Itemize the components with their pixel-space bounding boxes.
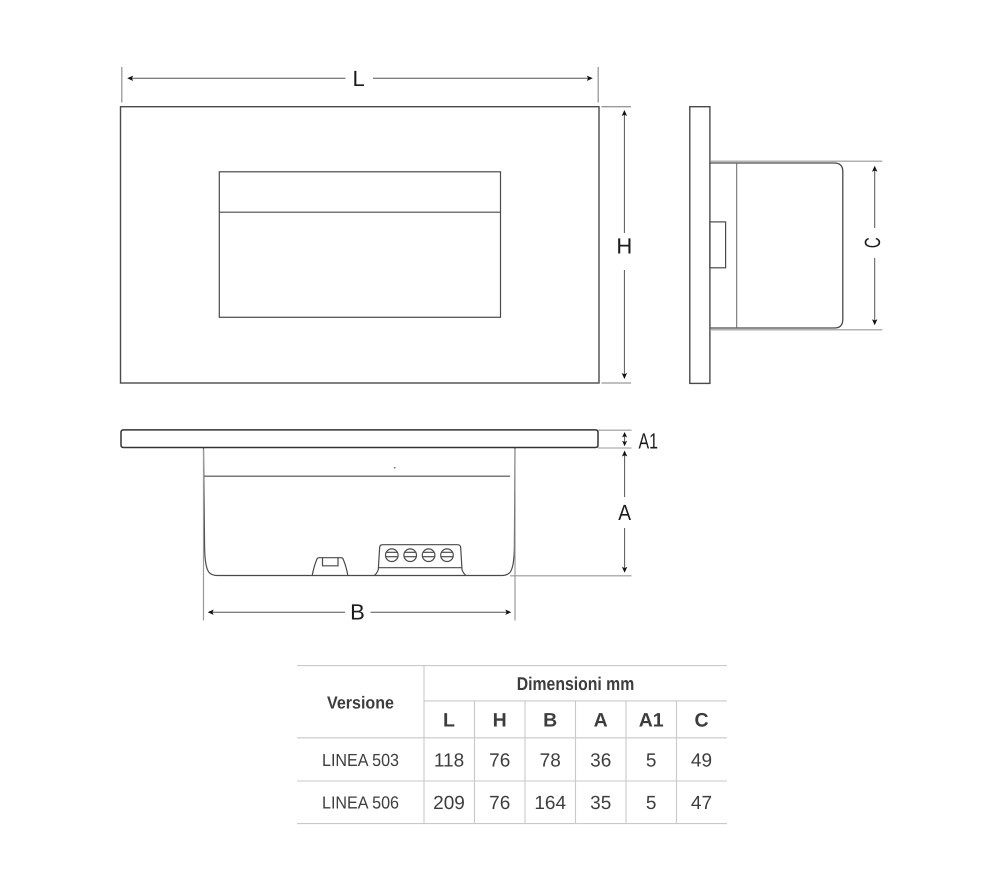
svg-text:C: C: [860, 237, 885, 248]
svg-text:118: 118: [434, 751, 464, 772]
svg-text:A: A: [594, 709, 608, 731]
svg-text:78: 78: [540, 751, 561, 772]
svg-text:H: H: [616, 234, 632, 259]
svg-text:209: 209: [433, 793, 465, 814]
svg-text:L: L: [352, 66, 364, 91]
svg-text:Dimensioni mm: Dimensioni mm: [517, 673, 635, 694]
svg-text:LINEA 506: LINEA 506: [322, 792, 399, 812]
svg-text:L: L: [443, 709, 455, 731]
svg-text:35: 35: [590, 793, 611, 814]
svg-text:76: 76: [489, 793, 510, 814]
svg-text:A1: A1: [639, 709, 664, 731]
svg-text:36: 36: [590, 751, 611, 772]
svg-text:C: C: [694, 709, 708, 731]
svg-text:A1: A1: [639, 429, 659, 454]
svg-text:49: 49: [691, 751, 712, 772]
svg-text:5: 5: [646, 793, 657, 814]
svg-text:B: B: [543, 709, 557, 731]
svg-text:76: 76: [489, 751, 510, 772]
svg-text:B: B: [350, 600, 365, 625]
svg-text:LINEA 503: LINEA 503: [322, 750, 399, 770]
svg-text:5: 5: [646, 751, 657, 772]
svg-text:164: 164: [534, 793, 566, 814]
svg-text:A: A: [618, 500, 631, 525]
svg-text:47: 47: [691, 793, 712, 814]
svg-text:H: H: [493, 709, 507, 731]
svg-text:Versione: Versione: [327, 692, 394, 712]
